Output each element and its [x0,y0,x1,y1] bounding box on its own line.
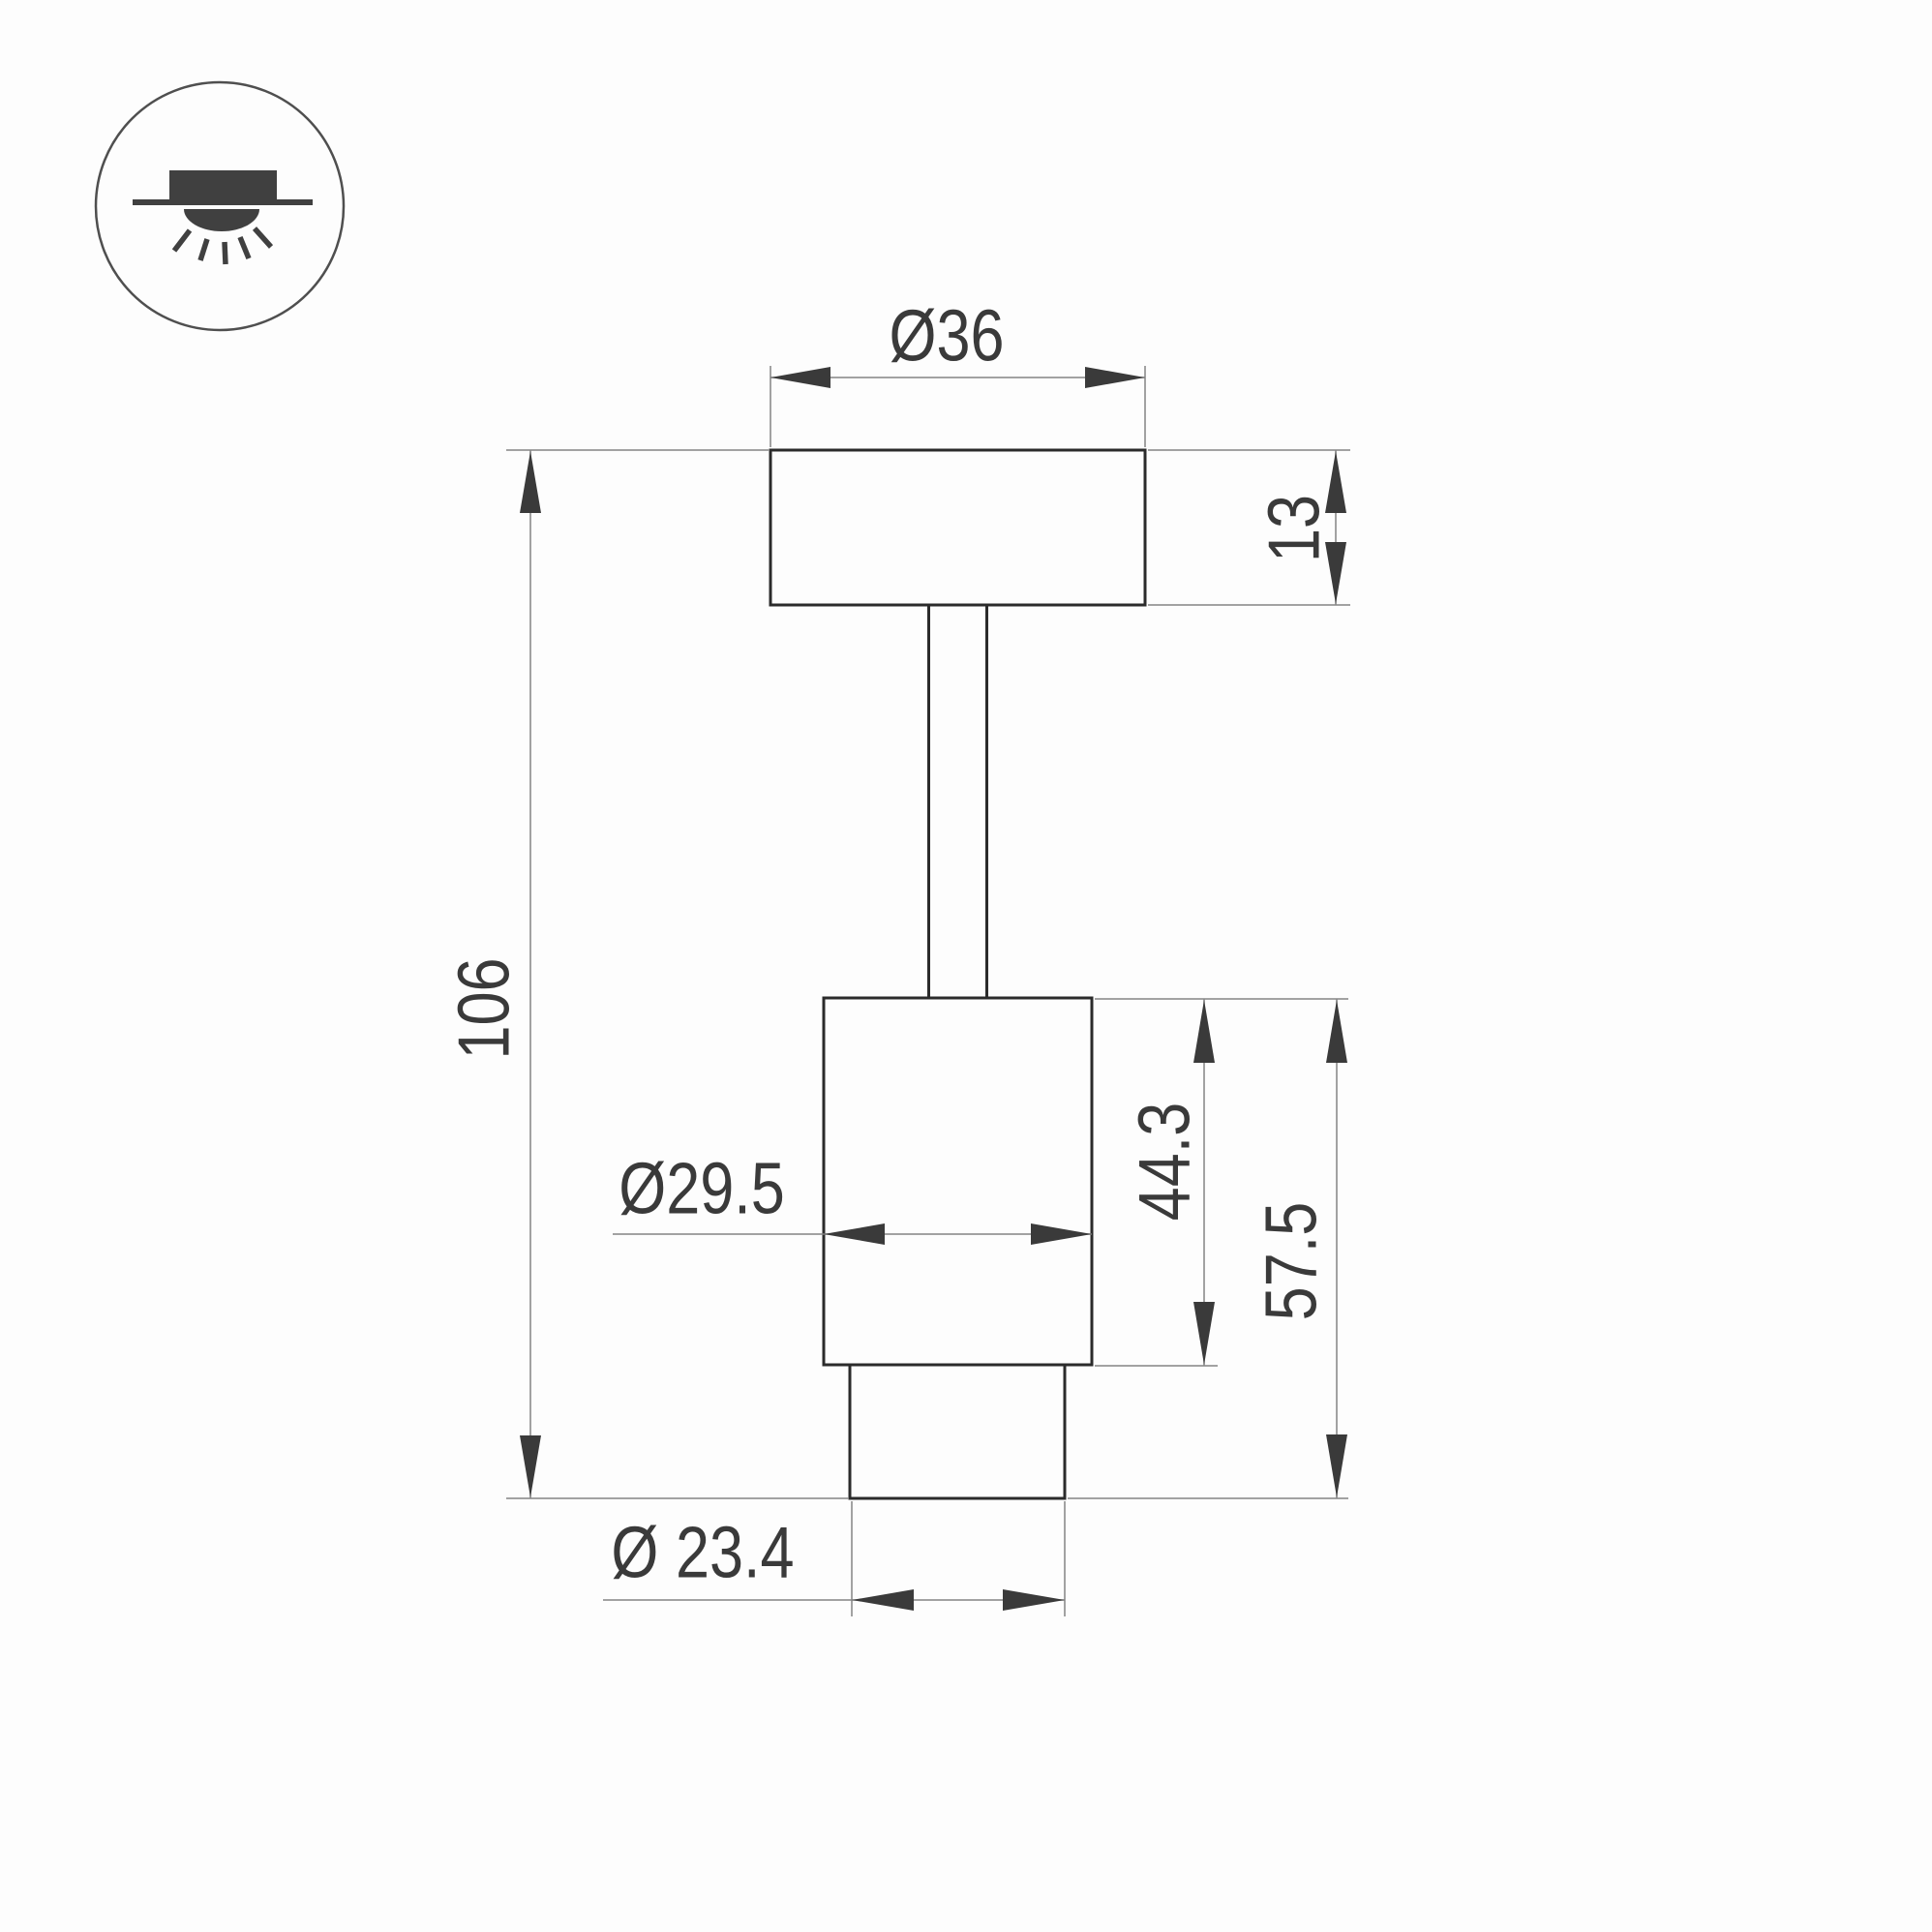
arrow-up [1193,1000,1215,1063]
icon-ceiling-line [133,199,313,205]
icon-fixture-box [169,170,277,201]
label-body-height: 44.3 [1129,1102,1201,1222]
arrow-up [520,451,541,513]
dimension-drawing-svg [0,0,1932,1932]
arrow-right [1085,367,1145,388]
arrow-up [1326,1000,1347,1063]
dimension-top-diameter [770,366,1145,447]
icon-circle [96,82,344,330]
arrow-down [1326,1434,1347,1497]
icon-light-rays [174,228,271,264]
label-nozzle-diameter: Ø 23.4 [611,1517,794,1589]
fixture-body [824,998,1092,1365]
arrow-down [520,1435,541,1497]
label-lower-height: 57.5 [1255,1202,1328,1321]
icon-light-dome [184,209,259,231]
fixture-mounting-plate [770,450,1145,605]
arrow-left [852,1589,914,1611]
label-plate-height: 13 [1258,495,1331,562]
surface-ceiling-light-icon [96,82,344,330]
arrow-left [770,367,830,388]
label-overall-height: 106 [448,957,521,1059]
drawing-canvas: Ø36 13 106 Ø29.5 44.3 57.5 Ø 23.4 [0,0,1932,1932]
fixture-nozzle [850,1365,1065,1498]
arrow-down [1193,1302,1215,1365]
fixture-stem [929,605,987,998]
arrow-right [1003,1589,1065,1611]
label-body-diameter: Ø29.5 [619,1153,785,1225]
fixture-outline [770,450,1145,1498]
label-top-diameter: Ø36 [889,300,1004,373]
dimension-overall-height [506,450,849,1498]
